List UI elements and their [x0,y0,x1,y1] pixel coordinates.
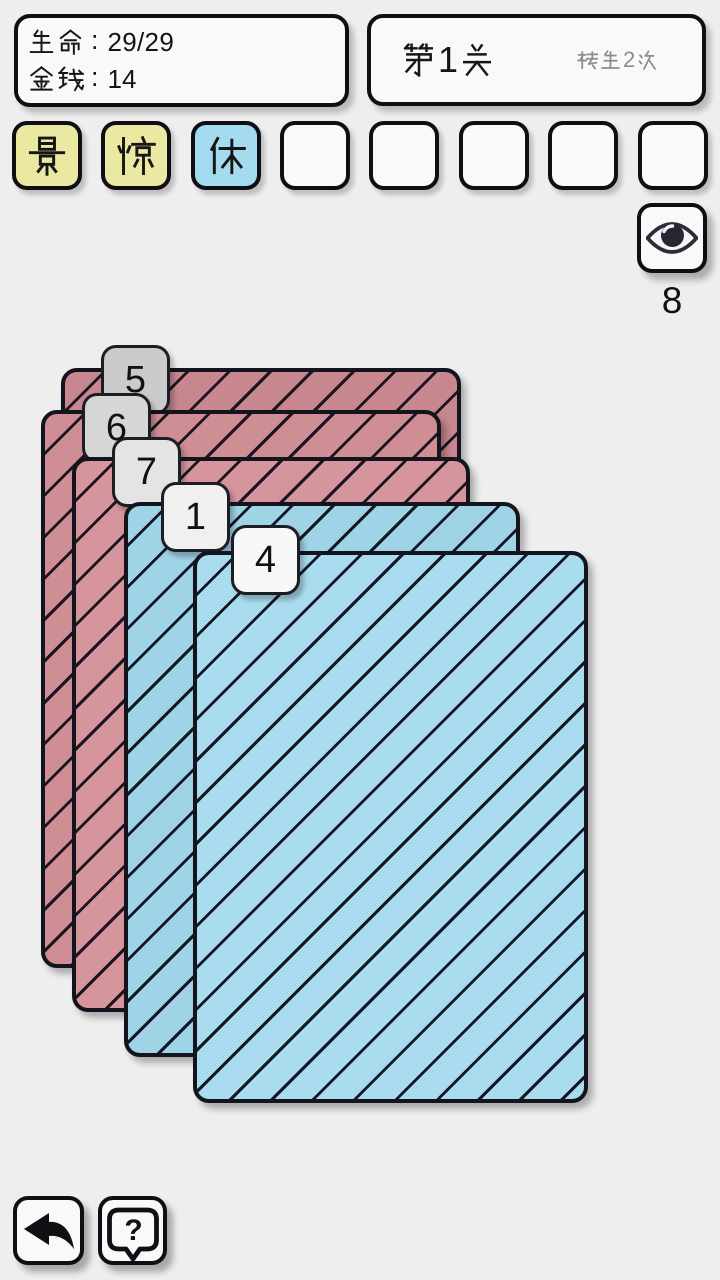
svg-text:?: ? [124,1214,142,1247]
